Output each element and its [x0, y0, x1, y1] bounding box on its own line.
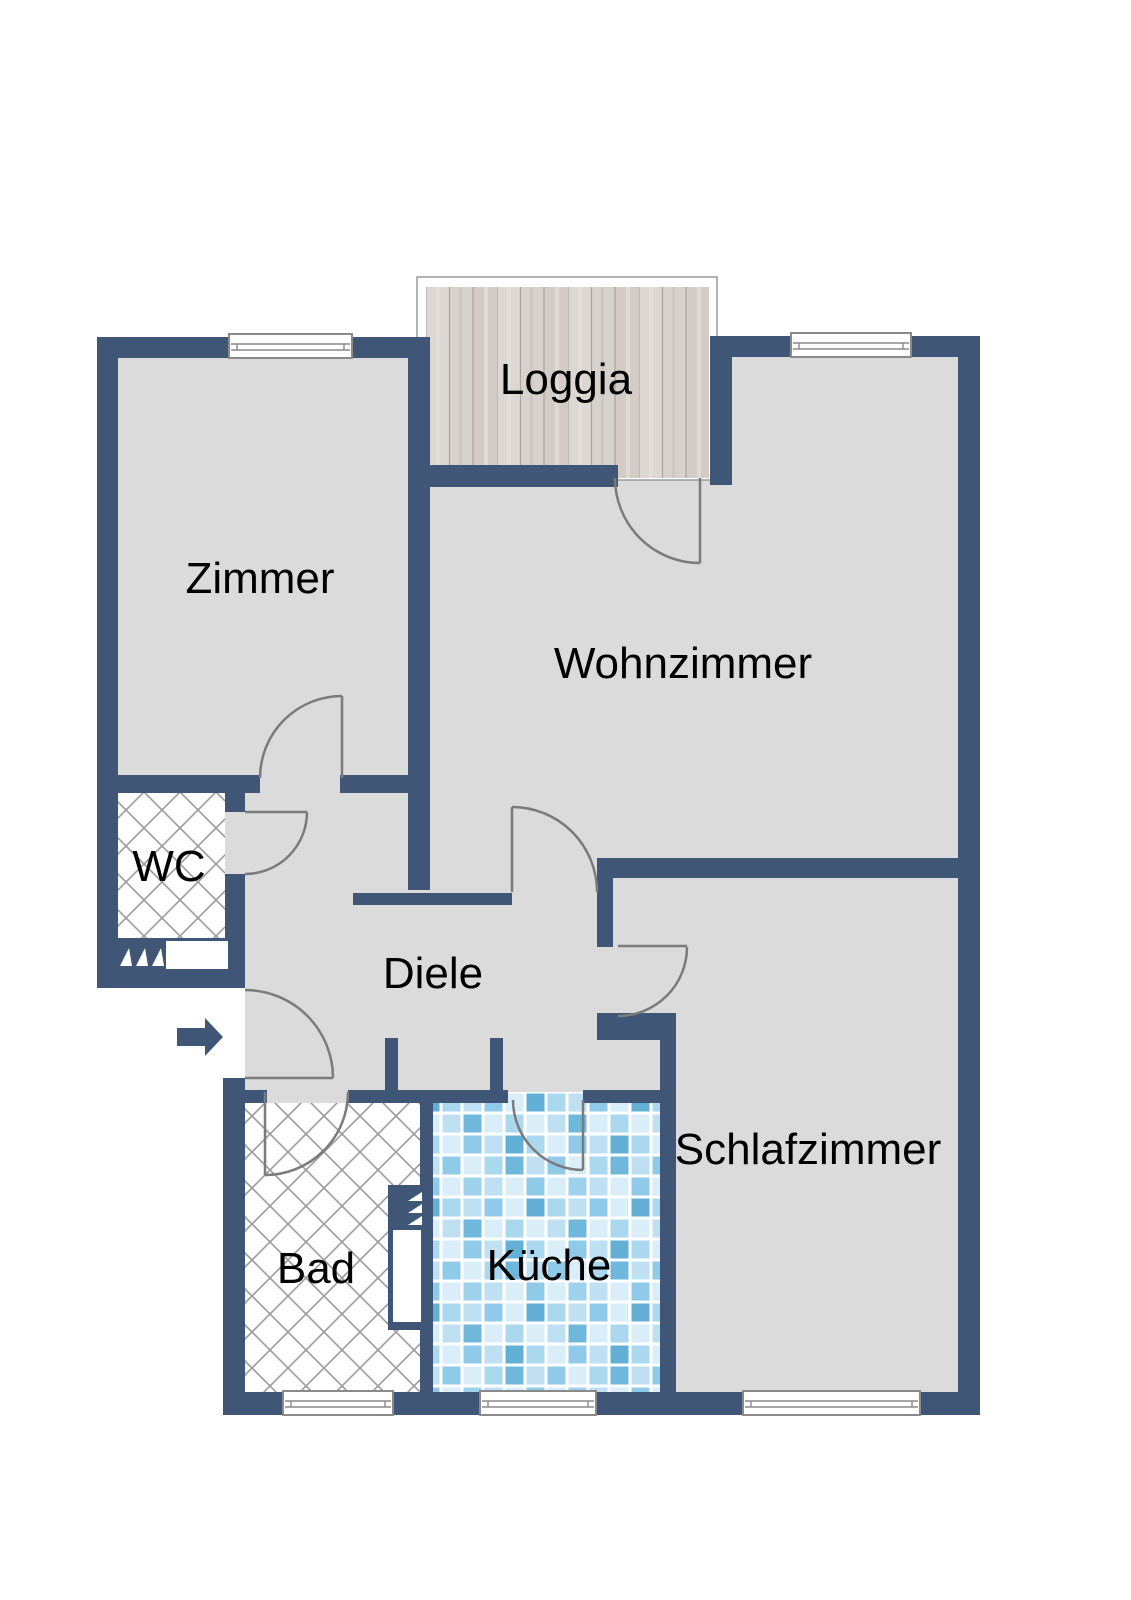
wall-diele-stub-right: [490, 1038, 503, 1092]
wall-loggia-right: [710, 336, 732, 485]
window-kueche: [480, 1391, 596, 1415]
wall-zimmer-wohnzimmer: [408, 337, 430, 890]
label-diele: Diele: [383, 949, 483, 998]
floor-plan-page: Loggia Zimmer Wohnzimmer WC Diele Schlaf…: [0, 0, 1131, 1600]
label-loggia: Loggia: [500, 355, 633, 404]
wall-wc-right-lower: [225, 874, 245, 938]
label-schlafzimmer: Schlafzimmer: [675, 1125, 942, 1174]
wall-kueche-right: [660, 1013, 676, 1392]
wall-bad-top-left: [243, 1090, 267, 1103]
wall-diele-stub-left: [385, 1038, 398, 1092]
window-zimmer: [229, 334, 352, 358]
wall-outer-left-lower: [223, 1078, 245, 1415]
wall-wohnzimmer-schlafzimmer: [613, 858, 958, 878]
wall-kueche-top: [583, 1090, 676, 1103]
wall-zimmer-bottom-right: [340, 775, 412, 793]
label-bad: Bad: [277, 1244, 355, 1293]
floor-plan: Loggia Zimmer Wohnzimmer WC Diele Schlaf…: [0, 0, 1131, 1600]
wall-diele-schlafzimmer-upper: [597, 858, 613, 947]
wc-shaft: [166, 941, 228, 969]
label-wc: WC: [132, 842, 205, 891]
label-zimmer: Zimmer: [185, 554, 334, 603]
entrance-arrow-icon: [177, 1018, 223, 1056]
window-wohnzimmer: [791, 333, 911, 357]
window-schlafzimmer: [743, 1391, 920, 1415]
label-wohnzimmer: Wohnzimmer: [554, 639, 812, 688]
kueche-door-threshold: [508, 1092, 583, 1103]
wall-outer-right: [958, 336, 980, 1415]
bad-shaft: [393, 1230, 421, 1322]
wall-diele-wohnzimmer: [353, 893, 512, 905]
wall-loggia-bottom: [418, 465, 618, 487]
label-kueche: Küche: [487, 1241, 612, 1290]
wall-wc-right-upper: [225, 775, 245, 812]
window-bad: [283, 1391, 393, 1415]
wall-outer-left: [97, 337, 118, 988]
